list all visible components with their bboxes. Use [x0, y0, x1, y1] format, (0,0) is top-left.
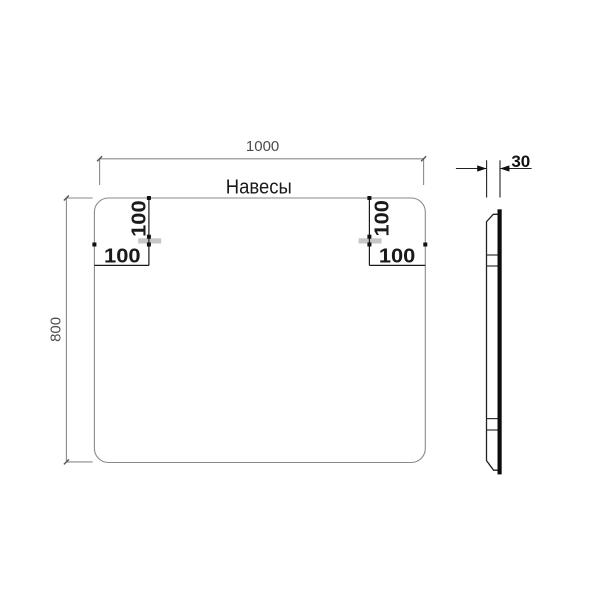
svg-text:100: 100 — [127, 200, 150, 237]
svg-text:Навесы: Навесы — [226, 177, 292, 199]
svg-text:30: 30 — [511, 152, 530, 171]
svg-text:100: 100 — [379, 245, 416, 268]
svg-text:1000: 1000 — [246, 138, 279, 155]
svg-text:100: 100 — [104, 245, 141, 268]
svg-text:800: 800 — [48, 317, 65, 342]
svg-text:100: 100 — [371, 200, 394, 237]
